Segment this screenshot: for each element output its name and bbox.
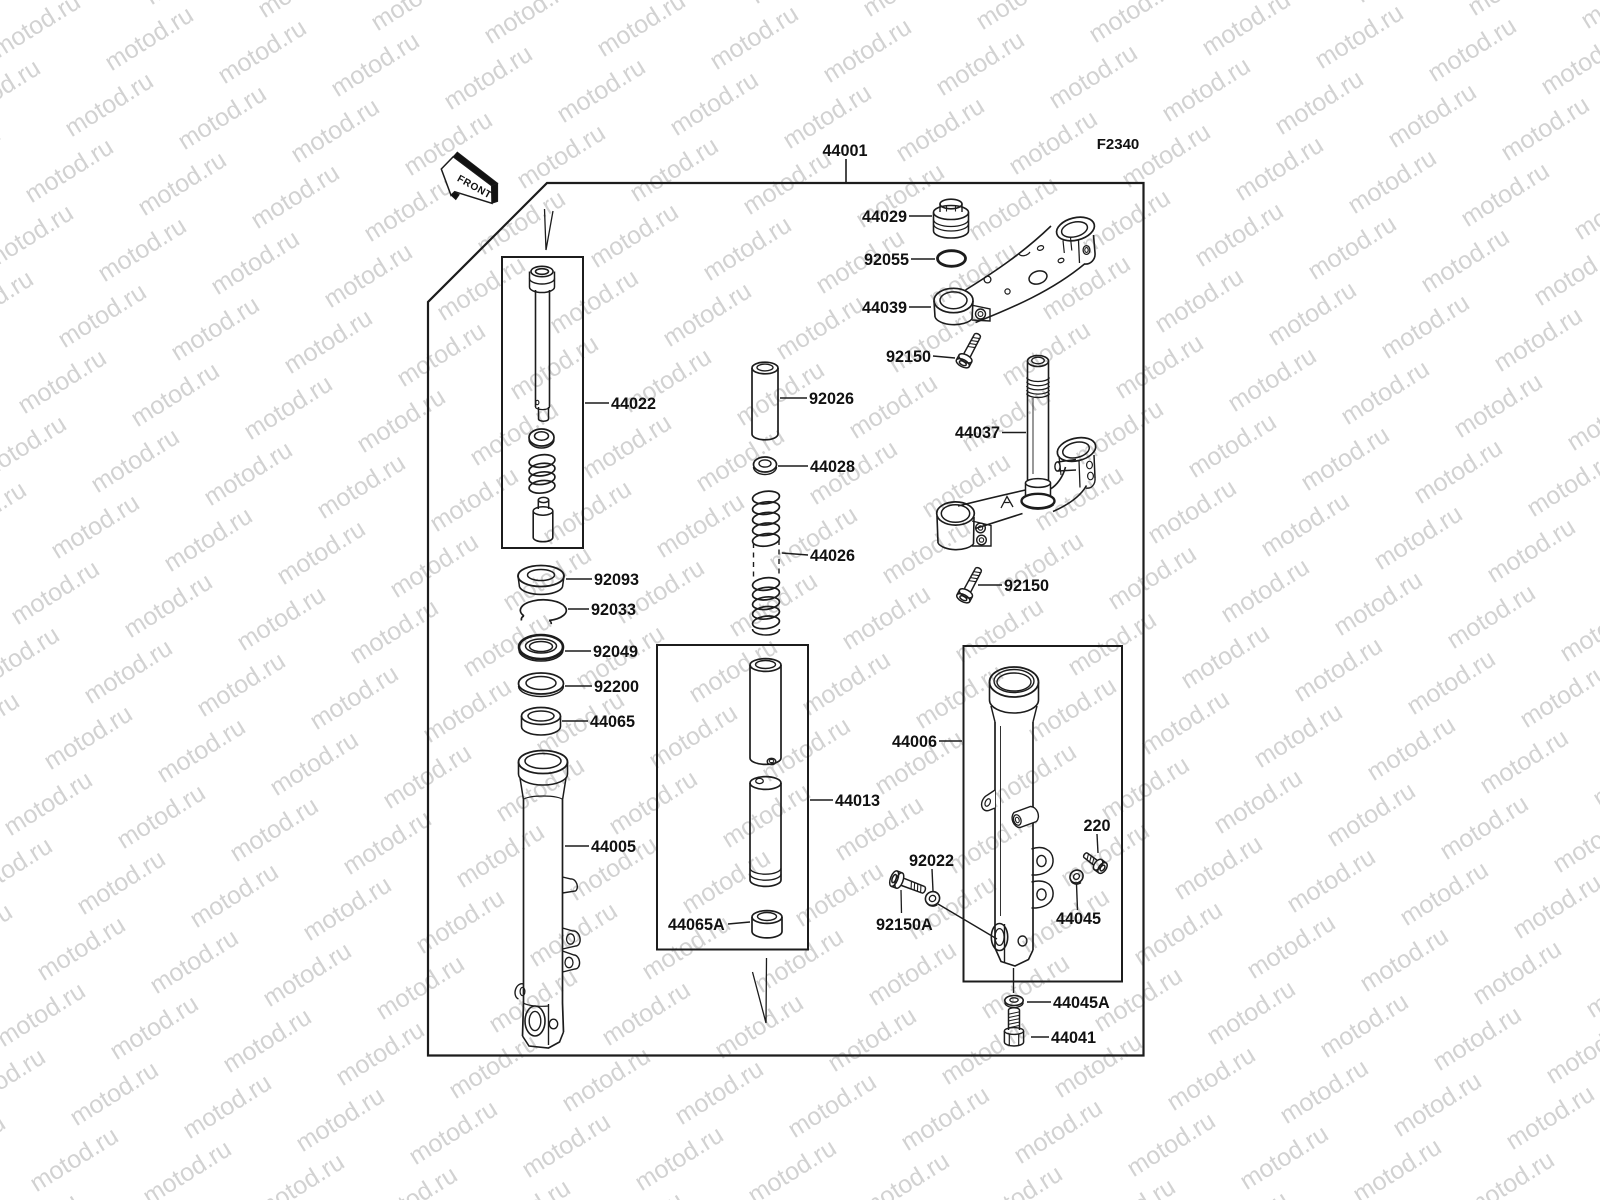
- svg-text:44041: 44041: [1051, 1029, 1096, 1047]
- svg-text:92033: 92033: [591, 601, 636, 619]
- svg-text:44065: 44065: [590, 713, 635, 731]
- svg-text:92055: 92055: [864, 251, 909, 269]
- svg-text:44045: 44045: [1056, 910, 1101, 928]
- svg-text:92150A: 92150A: [876, 916, 933, 934]
- svg-text:44013: 44013: [835, 792, 880, 810]
- svg-text:44045A: 44045A: [1053, 994, 1110, 1012]
- svg-text:92093: 92093: [594, 571, 639, 589]
- svg-text:220: 220: [1083, 817, 1110, 835]
- svg-text:92150: 92150: [886, 348, 931, 366]
- svg-text:92150: 92150: [1004, 577, 1049, 595]
- svg-text:F2340: F2340: [1097, 136, 1140, 153]
- svg-text:44022: 44022: [611, 395, 656, 413]
- svg-text:44001: 44001: [822, 142, 867, 160]
- svg-text:92200: 92200: [594, 678, 639, 696]
- svg-text:44065A: 44065A: [668, 916, 725, 934]
- svg-text:44006: 44006: [892, 733, 937, 751]
- svg-text:44037: 44037: [955, 424, 1000, 442]
- svg-text:92022: 92022: [909, 852, 954, 870]
- svg-text:44039: 44039: [862, 299, 907, 317]
- svg-text:44028: 44028: [810, 458, 855, 476]
- svg-text:92049: 92049: [593, 643, 638, 661]
- svg-text:44029: 44029: [862, 208, 907, 226]
- svg-text:92026: 92026: [809, 390, 854, 408]
- svg-text:44005: 44005: [591, 838, 636, 856]
- svg-text:44026: 44026: [810, 547, 855, 565]
